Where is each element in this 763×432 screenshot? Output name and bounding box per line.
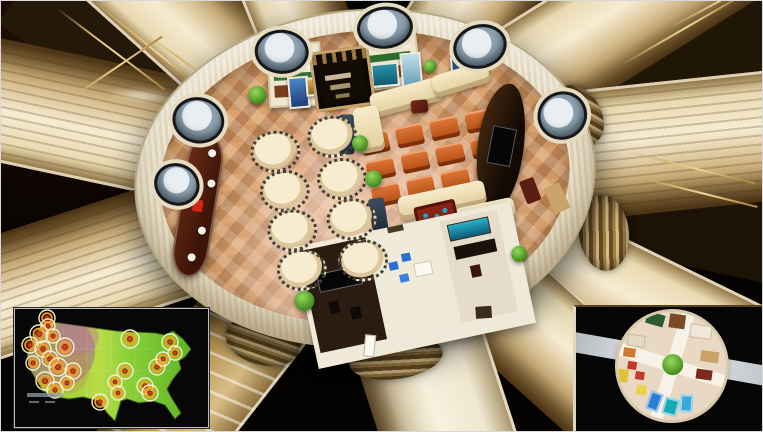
- blast-target: [26, 356, 40, 370]
- theater-seat: [434, 141, 465, 167]
- coffee-table: [410, 99, 428, 113]
- blast-target: [60, 376, 74, 390]
- stair-step: [325, 72, 351, 81]
- tv-screen-teal: [447, 216, 492, 241]
- billiard-ball: [442, 207, 448, 213]
- plan-bed-lightblue: [679, 394, 693, 413]
- bar-red-accent: [192, 199, 204, 212]
- blast-target: [56, 338, 74, 356]
- blue-chair: [388, 261, 398, 271]
- plan-seat-red: [627, 361, 637, 370]
- plan-shelves-brown: [668, 313, 686, 329]
- floor-plan-inset: [573, 305, 763, 432]
- blast-target: [92, 394, 108, 410]
- theater-seat: [400, 149, 431, 175]
- plan-seat-orange: [623, 347, 636, 358]
- office-chair: [470, 264, 482, 278]
- wall-art-lake: [370, 62, 400, 88]
- us-map-svg: [15, 309, 206, 425]
- floor-plan-circle: [611, 305, 733, 427]
- plan-seat-yellow: [636, 384, 647, 395]
- blast-target: [121, 330, 139, 348]
- bunker-hub-render: [0, 0, 763, 432]
- blast-target: [111, 386, 125, 400]
- plan-shelves-green: [645, 311, 666, 327]
- blast-target: [168, 346, 182, 360]
- white-table: [413, 260, 434, 277]
- bar-stool: [197, 226, 206, 235]
- office-chair: [350, 306, 362, 320]
- door-opening: [475, 306, 492, 319]
- theater-seat: [429, 115, 460, 141]
- stair-railing-lattice: [312, 48, 367, 65]
- theater-seat: [394, 123, 425, 149]
- tv-screen: [486, 125, 517, 167]
- us-target-map-inset: [14, 308, 209, 428]
- open-door-leaf: [363, 334, 376, 357]
- plan-room-topright: [689, 323, 713, 340]
- plan-room-left: [626, 334, 645, 348]
- plan-cabinet-maroon: [696, 368, 713, 380]
- media-console: [453, 238, 497, 259]
- blast-target: [142, 385, 158, 401]
- blue-chair: [399, 273, 409, 283]
- bar-stool: [207, 179, 216, 188]
- office-chair: [328, 300, 340, 314]
- plan-seat-yellow: [617, 369, 629, 383]
- plan-cabinet-tan: [700, 350, 719, 363]
- central-stairwell: [308, 45, 376, 113]
- stair-step: [335, 93, 349, 99]
- plan-seat-red: [635, 371, 645, 380]
- plan-bed-teal: [661, 396, 680, 416]
- blue-chair: [401, 252, 411, 262]
- bar-stool: [187, 253, 196, 262]
- stair-step: [330, 83, 351, 91]
- blast-target: [49, 358, 67, 376]
- bar-stool: [208, 149, 217, 158]
